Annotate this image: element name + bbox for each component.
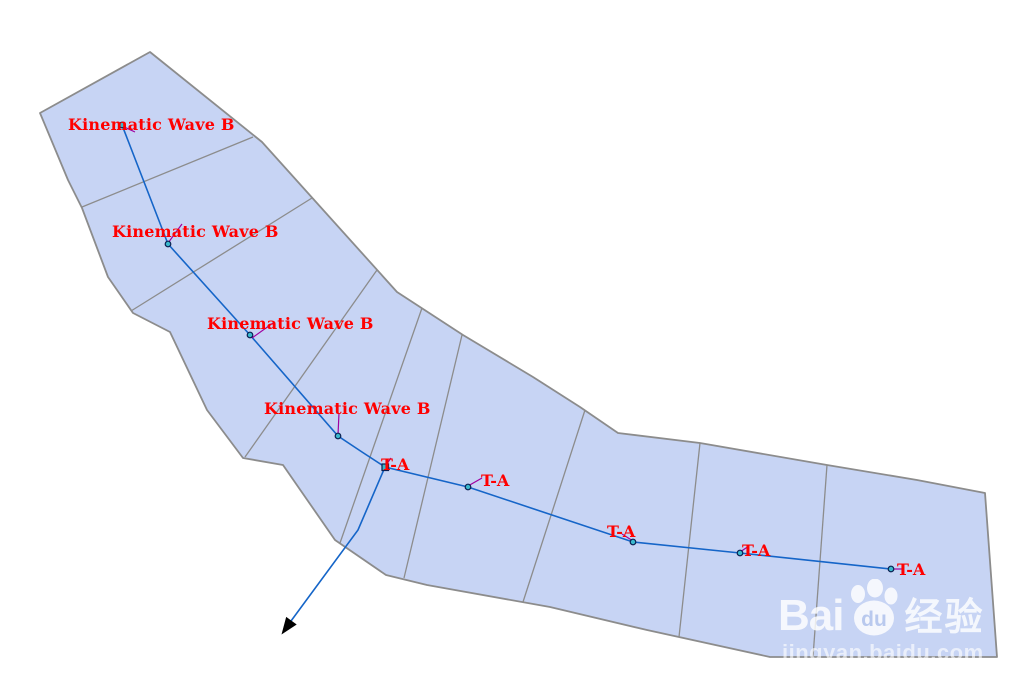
reach-label: T-A [381,455,410,474]
reach-label: T-A [897,560,926,579]
watershed-polygon [40,52,997,657]
reach-label: T-A [742,541,771,560]
basin-map: Kinematic Wave B Kinematic Wave B Kinema… [0,0,1020,686]
reach-node[interactable] [888,566,894,572]
subbasin-node[interactable] [335,433,341,439]
subbasin-node[interactable] [247,332,253,338]
subbasin-label: Kinematic Wave B [207,314,374,333]
outlet-arrowhead-icon [282,617,297,635]
basin-map-canvas: Kinematic Wave B Kinematic Wave B Kinema… [0,0,1020,686]
subbasin-node[interactable] [165,241,171,247]
subbasin-label: Kinematic Wave B [264,399,431,418]
subbasin-label: Kinematic Wave B [68,115,235,134]
reach-label: T-A [481,471,510,490]
reach-node[interactable] [465,484,471,490]
subbasin-label: Kinematic Wave B [112,222,279,241]
reach-label: T-A [607,522,636,541]
